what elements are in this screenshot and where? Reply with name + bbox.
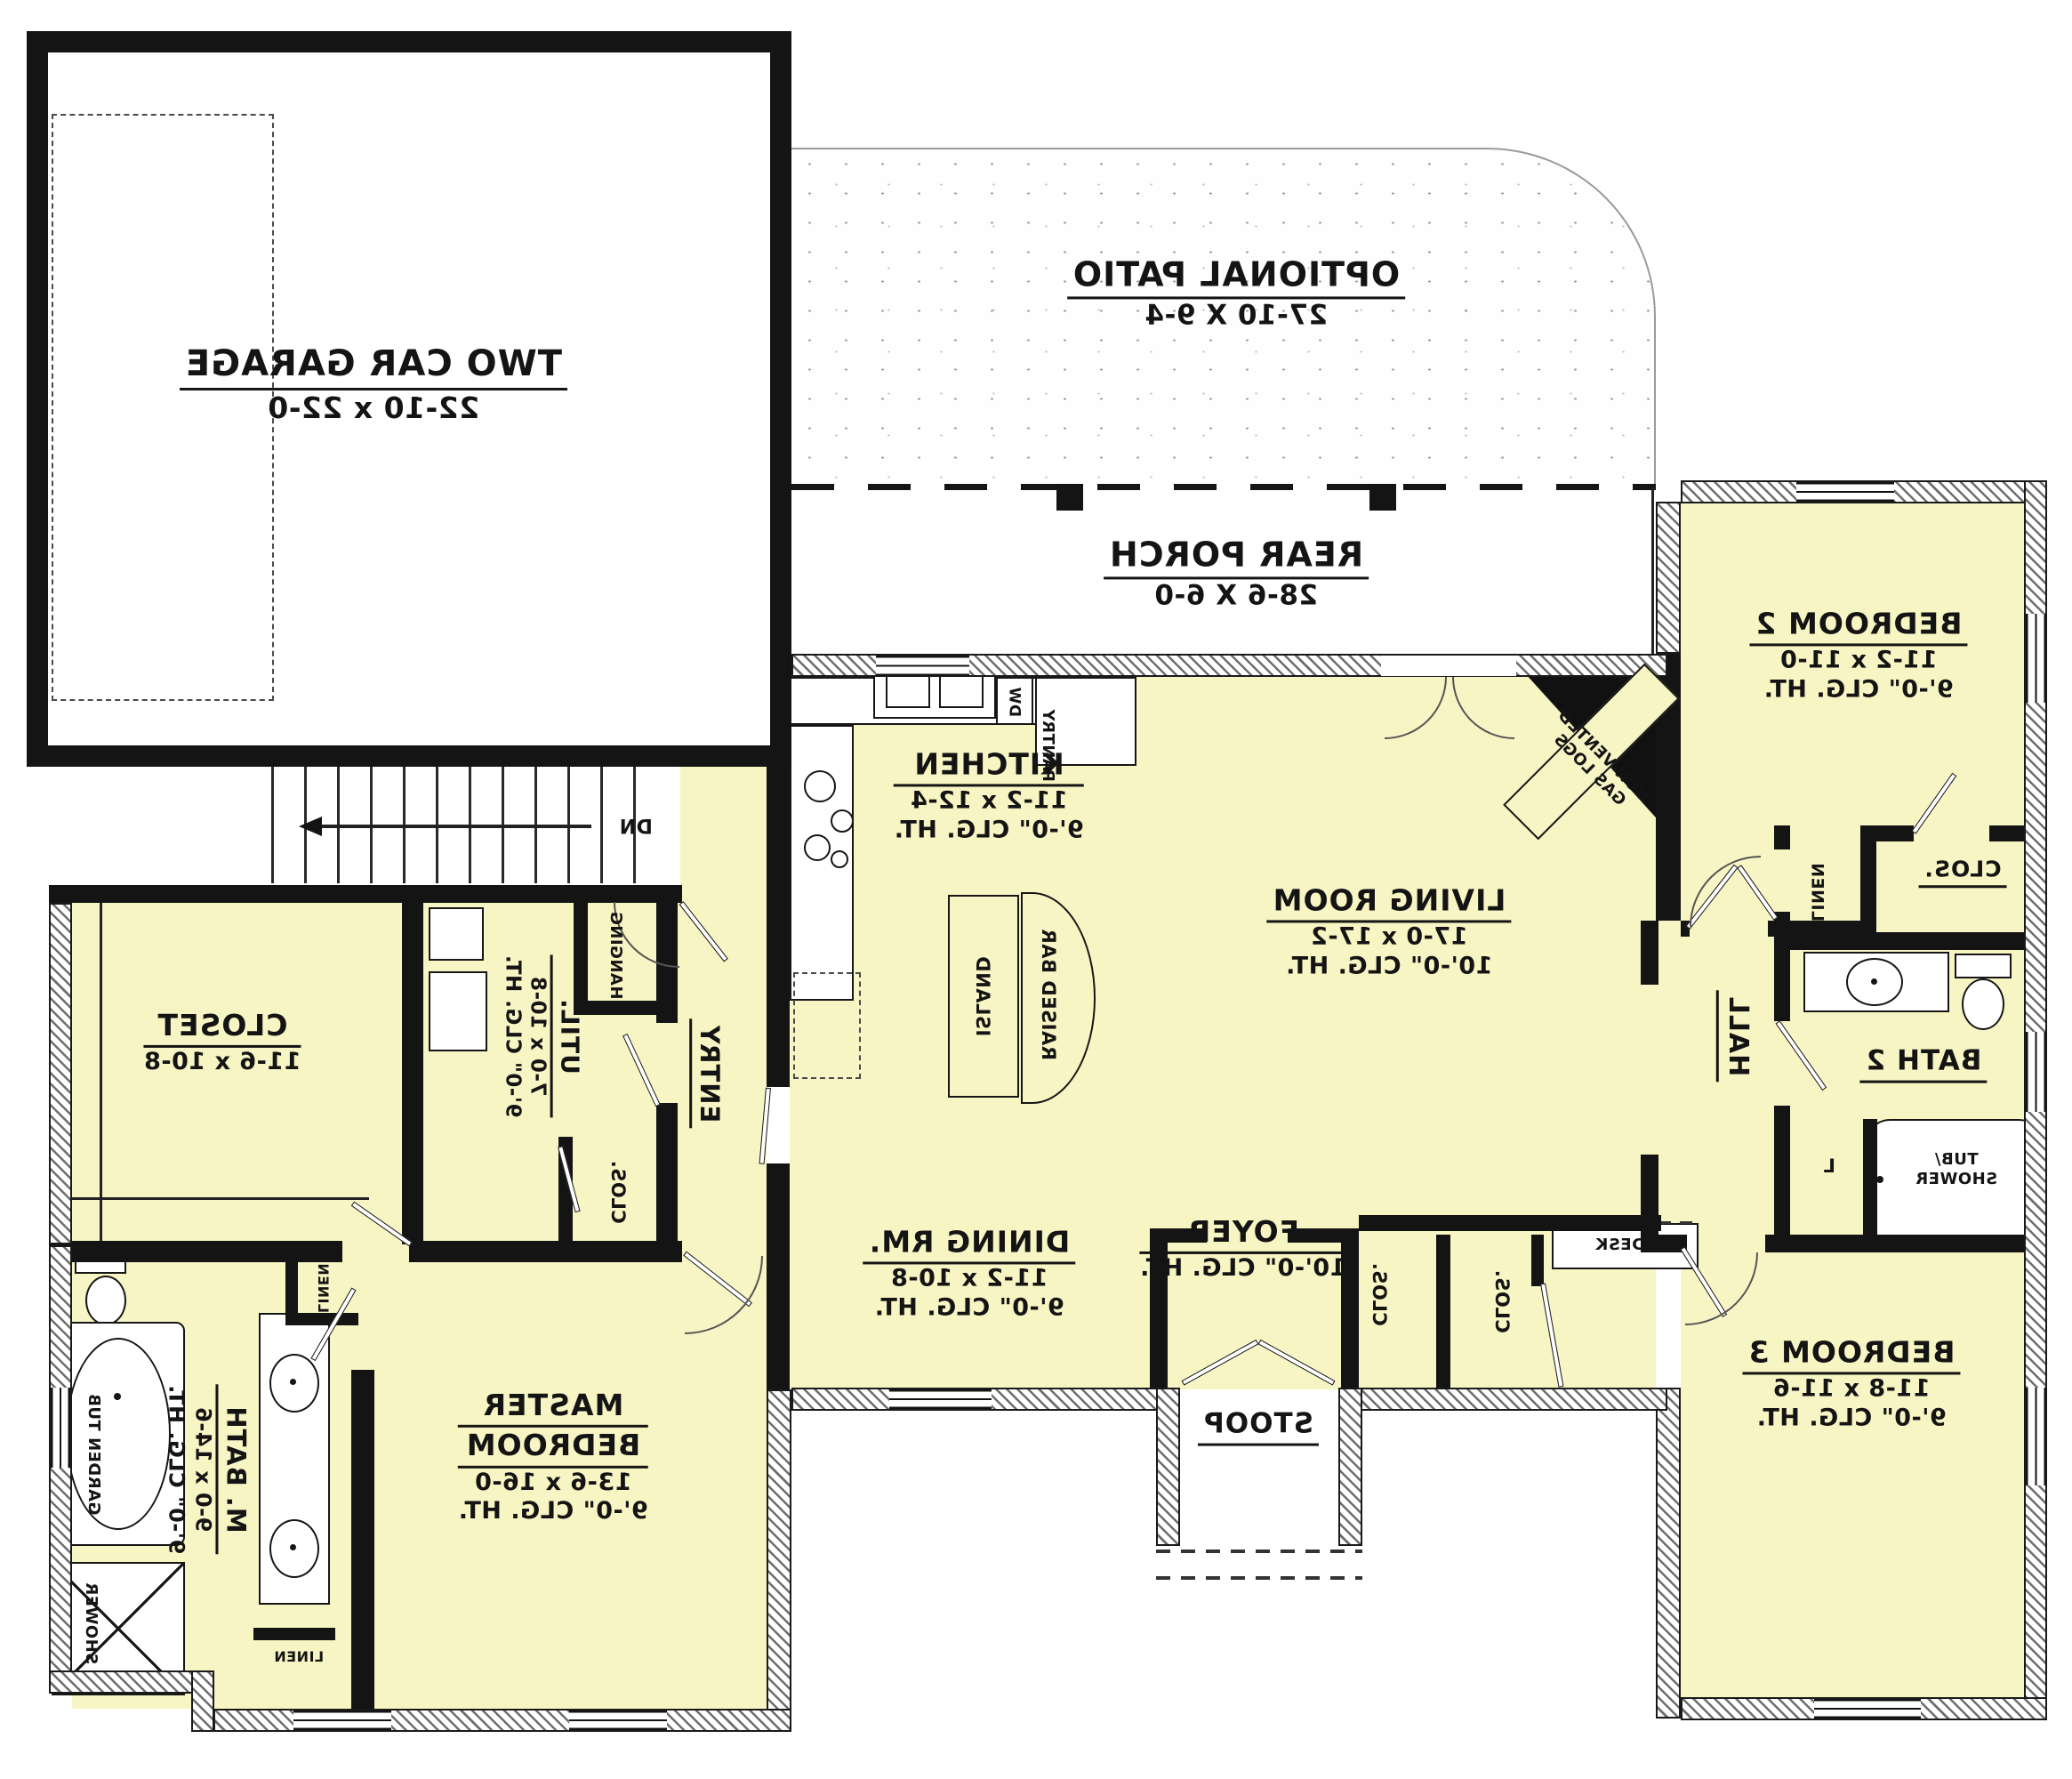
exterior-wall [49,1670,214,1694]
bedroom3-label-text: 11-8 x 11-6 [1743,1375,1961,1405]
closet-label-text: 11-6 x 10-8 [144,1048,301,1077]
wall [1860,825,1876,937]
tub-shower-label-text: TUB/ [1915,1150,1997,1170]
dining-label-text: 9'-0" CLG. HT. [863,1294,1076,1324]
porch-label-text: 28-6 X 6-0 [1104,580,1369,614]
living-room-label-text: 17-0 x 17-2 [1267,923,1512,953]
patio-label-text: 27-10 X 9-4 [1067,300,1405,334]
wall [656,1103,678,1245]
stoop-label-text: STOOP [1198,1408,1319,1446]
tub-shower-label: TUB/SHOWER [1915,1150,1997,1189]
clos-foyer1-label: CLOS. [1367,1262,1390,1326]
wall [1531,1235,1544,1286]
sink-faucet [290,1379,296,1385]
wall [285,1313,358,1325]
bedroom2-label-text: 9'-0" CLG. HT. [1750,676,1968,705]
wall [1774,825,1790,849]
refrigerator-space [793,972,861,1079]
cooktop-burner [804,834,831,861]
raised-bar-label-text: RAISED BAR [1036,929,1059,1060]
master-bedroom-label-text: BEDROOM [458,1428,648,1468]
exterior-wall [49,1245,72,1694]
wall [49,885,682,903]
mbath-label: M. BATH9-0 x 14-69'-0" CLG. HT. [164,1385,252,1555]
shower-label-text: SHOWER [81,1582,100,1664]
mbath-label-text: M. BATH [215,1385,251,1555]
master-bedroom-label-text: 9'-0" CLG. HT. [458,1497,648,1526]
foyer-label: FOYER10'-0" CLG. HT. [1140,1214,1347,1284]
linen-hall-label: LINEN [1806,863,1827,922]
floor-entry-top [680,767,767,903]
toilet-bowl [1962,978,2004,1030]
wall [1876,825,1914,841]
exterior-wall [767,1389,791,1732]
window [889,1389,992,1409]
living-room-label-text: 10'-0" CLG. HT. [1267,953,1512,982]
clos-foyer2-label: CLOS. [1490,1269,1513,1333]
floor-plan: TWO CAR GARAGE22-10 x 22-0OPTIONAL PATIO… [0,0,2072,1779]
stair-arrow-line [320,825,591,828]
window [2026,614,2046,703]
stoop-label: STOOP [1198,1408,1319,1446]
entry-label-text: ENTRY [689,1019,725,1129]
bedroom2-label-text: BEDROOM 2 [1750,606,1968,646]
clos-foyer1-label-text: CLOS. [1367,1262,1390,1326]
hanging-label: HANGING [606,912,625,1000]
door-opening [1381,656,1516,676]
pantry-label-text: PANTRY [1038,709,1057,782]
util-label-text: 9'-0" CLG. HT. [500,955,525,1118]
bedroom3-label: BEDROOM 311-8 x 11-69'-0" CLG. HT. [1743,1334,1961,1433]
pantry-label: PANTRY [1038,709,1057,782]
tub-faucet [1876,1176,1883,1183]
wall [409,1241,682,1262]
exterior-wall [1156,1388,1180,1546]
bedroom3-label-text: BEDROOM 3 [1743,1334,1961,1374]
stairs-dn-label-text: DN [619,817,653,841]
linen-mbath-top-label-text: LINEN [314,1263,332,1313]
living-room-label: LIVING ROOM17-0 x 17-210'-0" CLG. HT. [1267,882,1512,981]
stair-arrow-head [299,817,322,836]
toilet-bowl [85,1276,126,1325]
dw-label: DW [1005,687,1024,717]
exterior-wall [1656,1388,1681,1719]
closet-shelf-line [52,1197,369,1200]
window [2026,1032,2046,1112]
wall [1774,1106,1790,1245]
desk-label: DESK [1595,1236,1645,1255]
kitchen-label-text: 9'-0" CLG. HT. [894,817,1084,846]
island-label: ISLAND [970,956,993,1037]
exterior-wall [1359,1388,1667,1411]
desk-label-text: DESK [1595,1236,1645,1255]
util-label-text: UTIL. [550,955,584,1118]
porch-edge-right [1651,487,1654,654]
window [2026,1388,2046,1485]
wall [1774,912,1790,1021]
garage-label-text: TWO CAR GARAGE [180,342,567,390]
wall [1436,1235,1450,1391]
hanging-label-text: HANGING [606,912,625,1000]
util-label-text: 7-0 x 10-8 [525,955,550,1118]
bedroom2-label-text: 11-2 x 11-0 [1750,647,1968,676]
wall [767,767,790,1087]
exterior-wall [1338,1388,1362,1546]
entry-label: ENTRY [689,1019,725,1129]
window [569,1711,667,1730]
stoop-step-dashed [1156,1550,1362,1553]
closet-label: CLOSET11-6 x 10-8 [144,1008,301,1077]
patio-label: OPTIONAL PATIO27-10 X 9-4 [1067,254,1405,333]
shower-label: SHOWER [81,1582,100,1664]
hall-label-text: HALL [1716,991,1754,1083]
dining-label-text: DINING RM. [863,1224,1076,1264]
raised-bar-label: RAISED BAR [1036,929,1059,1060]
exterior-wall [191,1670,214,1732]
util-label: UTIL.7-0 x 10-89'-0" CLG. HT. [500,955,584,1118]
dw-label-text: DW [1005,687,1024,717]
master-bedroom-label-text: MASTER [458,1388,648,1428]
patio-label-text: OPTIONAL PATIO [1067,254,1405,299]
island-label-text: ISLAND [970,956,993,1037]
wall [1765,1235,2047,1252]
stairs-dn-label: DN [619,817,653,841]
kitchen-label-text: 11-2 x 12-4 [894,787,1084,817]
exterior-wall [49,903,72,1244]
window [1814,1699,1921,1719]
cooktop-burner [804,770,836,802]
porch-post [1369,484,1396,511]
bath2-label-text: BATH 2 [1860,1045,1988,1083]
window [293,1711,391,1730]
washer [429,907,484,961]
linen-mbath-bottom-label-text: LINEN [274,1648,324,1666]
wall [402,903,423,1244]
toilet-tank [1955,954,2012,978]
dining-label: DINING RM.11-2 x 10-89'-0" CLG. HT. [863,1224,1076,1323]
clos-bedroom2-label: CLOS. [1918,856,2006,888]
hall-label: HALL [1716,991,1754,1083]
stoop-step-dashed [1156,1576,1362,1580]
exterior-wall [1656,502,1681,654]
wall [253,1628,335,1640]
clos-util-label: CLOS. [606,1160,629,1224]
porch-edge-dashed [791,484,1656,490]
wall-garage [770,31,791,767]
garage-label-text: 22-10 x 22-0 [180,390,567,426]
linen-hall-label-text: LINEN [1806,863,1827,922]
cooktop-burner [831,850,848,868]
wall [1790,932,2047,950]
dining-label-text: 11-2 x 10-8 [863,1265,1076,1294]
clos-foyer2-label-text: CLOS. [1490,1269,1513,1333]
tub-faucet [114,1393,121,1400]
clos-bedroom2-label-text: CLOS. [1918,856,2006,888]
window [876,656,969,676]
garden-tub-basin [66,1338,171,1530]
bath2-label: BATH 2 [1860,1045,1988,1083]
bedroom2-label: BEDROOM 211-2 x 11-09'-0" CLG. HT. [1750,606,1968,704]
wall [767,1163,790,1245]
linen-mbath-bottom-label: LINEN [274,1648,324,1666]
porch-label-text: REAR PORCH [1104,534,1369,579]
foyer-label-text: 10'-0" CLG. HT. [1140,1254,1347,1284]
dryer [429,971,487,1051]
mbath-label-text: 9'-0" CLG. HT. [164,1385,189,1555]
master-bedroom-label: MASTERBEDROOM13-6 x 16-09'-0" CLG. HT. [458,1388,648,1526]
l-closet-label: L [1823,1155,1835,1179]
porch-label: REAR PORCH28-6 X 6-0 [1104,534,1369,613]
window [1796,482,1894,502]
floor-bedroom3 [1681,1252,2024,1697]
closet-shelf-line [100,903,102,1241]
living-room-label-text: LIVING ROOM [1267,882,1512,922]
wall [767,1245,790,1389]
wall-garage [27,745,791,767]
cooktop-burner [831,809,854,833]
wall-garage [27,31,48,767]
mbath-label-text: 9-0 x 14-6 [189,1385,215,1555]
tub-shower-label-text: SHOWER [1915,1170,1997,1189]
window [51,1388,70,1468]
bedroom3-label-text: 9'-0" CLG. HT. [1743,1405,1961,1434]
wall [1641,921,1658,985]
linen-mbath-top-label: LINEN [314,1263,332,1313]
closet-label-text: CLOSET [144,1008,301,1048]
garden-tub-label: GARDEN TUB [84,1394,103,1516]
clos-util-label-text: CLOS. [606,1160,629,1224]
master-bedroom-label-text: 13-6 x 16-0 [458,1468,648,1497]
l-closet-label-text: L [1823,1155,1835,1179]
wall [1359,1215,1661,1231]
wall [1863,1119,1877,1245]
foyer-label-text: FOYER [1140,1214,1347,1254]
wall [49,1241,342,1262]
sink-faucet [1871,978,1877,985]
sink-faucet [290,1544,296,1550]
garage-label: TWO CAR GARAGE22-10 x 22-0 [180,342,567,426]
garden-tub-label-text: GARDEN TUB [84,1394,103,1516]
wall [351,1370,374,1710]
porch-post [1056,484,1083,511]
wall-garage [27,31,791,52]
